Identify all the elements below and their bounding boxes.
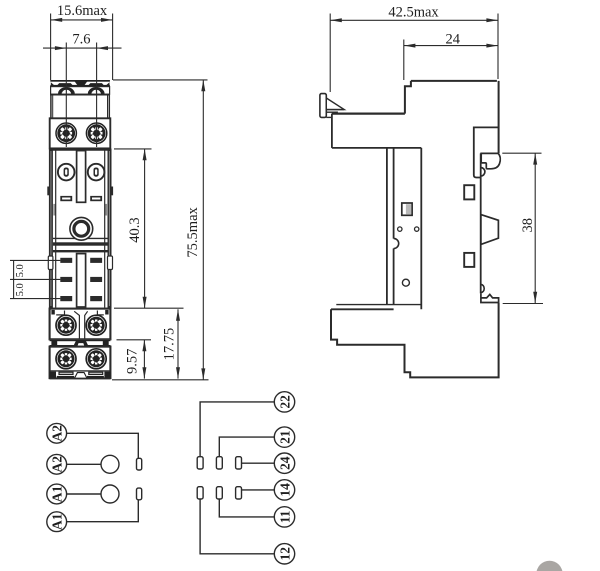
svg-text:17.75: 17.75 bbox=[162, 328, 178, 361]
svg-text:12: 12 bbox=[277, 547, 292, 561]
svg-text:42.5max: 42.5max bbox=[388, 5, 439, 21]
svg-text:A2: A2 bbox=[50, 425, 65, 442]
svg-text:15.6max: 15.6max bbox=[57, 3, 108, 19]
svg-text:40.3: 40.3 bbox=[127, 217, 143, 242]
svg-text:5.0: 5.0 bbox=[15, 283, 26, 296]
svg-text:5.0: 5.0 bbox=[15, 264, 26, 277]
svg-text:14: 14 bbox=[277, 483, 292, 497]
svg-text:A2: A2 bbox=[50, 456, 65, 473]
svg-text:75.5max: 75.5max bbox=[185, 206, 201, 257]
svg-text:A1: A1 bbox=[50, 513, 65, 530]
svg-text:22: 22 bbox=[277, 395, 292, 409]
svg-text:9.57: 9.57 bbox=[125, 349, 141, 374]
svg-text:7.6: 7.6 bbox=[72, 32, 90, 48]
svg-text:11: 11 bbox=[277, 510, 292, 523]
svg-text:A1: A1 bbox=[50, 486, 65, 503]
svg-text:38: 38 bbox=[520, 218, 536, 233]
svg-text:24: 24 bbox=[277, 456, 292, 470]
svg-text:21: 21 bbox=[277, 430, 292, 444]
